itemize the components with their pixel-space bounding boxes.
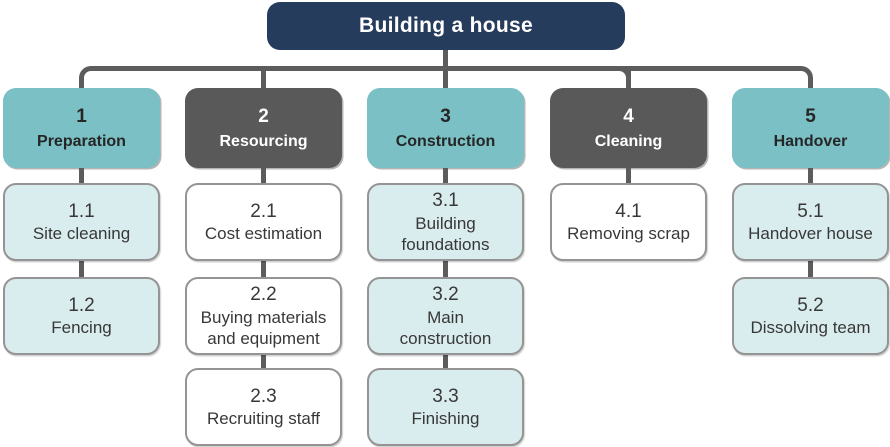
header-name: Handover bbox=[774, 130, 848, 153]
child-label: Main construction bbox=[400, 307, 492, 350]
child-label: Cost estimation bbox=[205, 223, 322, 244]
header-name: Cleaning bbox=[595, 130, 663, 153]
header-number: 5 bbox=[805, 103, 816, 131]
child-label: Removing scrap bbox=[567, 223, 690, 244]
child-code: 3.2 bbox=[432, 283, 458, 307]
child-code: 3.3 bbox=[432, 385, 458, 409]
root-node: Building a house bbox=[267, 2, 625, 50]
child-code: 4.1 bbox=[615, 200, 641, 224]
child-label: Recruiting staff bbox=[207, 408, 320, 429]
child-node-cost-estimation: 2.1 Cost estimation bbox=[185, 183, 342, 261]
header-number: 4 bbox=[623, 103, 634, 131]
root-stub-connector bbox=[443, 48, 448, 68]
child-label: Building foundations bbox=[402, 213, 490, 256]
header-node-handover: 5 Handover bbox=[732, 88, 889, 168]
child-code: 5.2 bbox=[797, 294, 823, 318]
child-node-recruiting-staff: 2.3 Recruiting staff bbox=[185, 368, 342, 446]
header-node-construction: 3 Construction bbox=[367, 88, 524, 168]
child-label: Fencing bbox=[51, 317, 111, 338]
child-code: 1.2 bbox=[68, 294, 94, 318]
child-node-site-cleaning: 1.1 Site cleaning bbox=[3, 183, 160, 261]
child-node-dissolving-team: 5.2 Dissolving team bbox=[732, 277, 889, 355]
child-label: Site cleaning bbox=[33, 223, 130, 244]
child-label: Dissolving team bbox=[751, 317, 871, 338]
child-code: 2.1 bbox=[250, 200, 276, 224]
header-name: Preparation bbox=[37, 130, 126, 153]
child-node-finishing: 3.3 Finishing bbox=[367, 368, 524, 446]
header-number: 2 bbox=[258, 103, 269, 131]
header-number: 3 bbox=[440, 103, 451, 131]
header-node-cleaning: 4 Cleaning bbox=[550, 88, 707, 168]
child-code: 2.3 bbox=[250, 385, 276, 409]
child-label: Handover house bbox=[748, 223, 873, 244]
header-name: Resourcing bbox=[219, 130, 307, 153]
child-code: 5.1 bbox=[797, 200, 823, 224]
header-name: Construction bbox=[396, 130, 496, 153]
child-code: 3.1 bbox=[432, 189, 458, 213]
header-node-resourcing: 2 Resourcing bbox=[185, 88, 342, 168]
child-node-fencing: 1.2 Fencing bbox=[3, 277, 160, 355]
child-code: 1.1 bbox=[68, 200, 94, 224]
root-title: Building a house bbox=[359, 14, 533, 38]
wbs-diagram: Building a house 1 Preparation 1.1 Site … bbox=[0, 0, 890, 447]
child-node-buying-materials: 2.2 Buying materials and equipment bbox=[185, 277, 342, 355]
child-label: Buying materials and equipment bbox=[201, 307, 327, 350]
child-node-main-construction: 3.2 Main construction bbox=[367, 277, 524, 355]
header-node-preparation: 1 Preparation bbox=[3, 88, 160, 168]
header-number: 1 bbox=[76, 103, 87, 131]
child-code: 2.2 bbox=[250, 283, 276, 307]
child-node-removing-scrap: 4.1 Removing scrap bbox=[550, 183, 707, 261]
child-label: Finishing bbox=[411, 408, 479, 429]
child-node-handover-house: 5.1 Handover house bbox=[732, 183, 889, 261]
child-node-building-foundations: 3.1 Building foundations bbox=[367, 183, 524, 261]
